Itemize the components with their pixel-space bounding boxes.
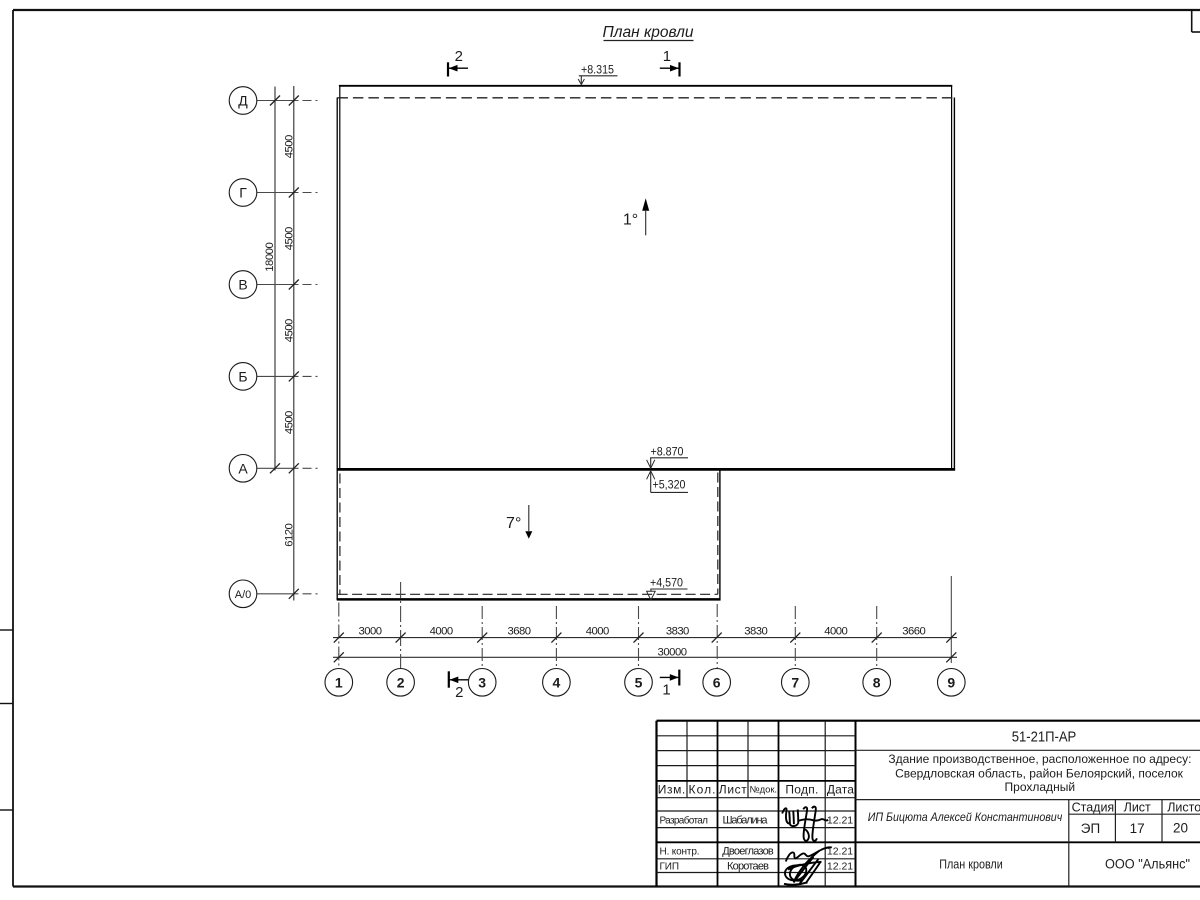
svg-text:План кровли: План кровли <box>939 857 1003 871</box>
svg-text:Разработал: Разработал <box>660 814 709 826</box>
svg-text:Дата: Дата <box>827 783 854 797</box>
svg-text:3830: 3830 <box>744 626 768 638</box>
svg-text:Свердловская область, район Бе: Свердловская область, район Белоярский, … <box>895 766 1184 780</box>
svg-text:2: 2 <box>455 684 463 701</box>
svg-text:Б: Б <box>238 368 247 384</box>
svg-text:3: 3 <box>478 674 486 690</box>
svg-text:Двоеглазов: Двоеглазов <box>722 845 774 857</box>
svg-text:Лист: Лист <box>1124 800 1151 814</box>
svg-text:2: 2 <box>397 674 405 690</box>
svg-text:Стадия: Стадия <box>1072 800 1115 814</box>
svg-text:А/0: А/0 <box>235 589 252 601</box>
svg-text:Лист: Лист <box>719 783 748 797</box>
svg-text:+5,320: +5,320 <box>653 477 686 491</box>
svg-text:Прохладный: Прохладный <box>1005 780 1075 794</box>
svg-text:51-21П-АР: 51-21П-АР <box>1012 729 1077 746</box>
svg-text:4: 4 <box>553 674 561 690</box>
svg-text:Н. контр.: Н. контр. <box>660 846 700 857</box>
svg-text:2: 2 <box>455 48 463 65</box>
svg-text:4500: 4500 <box>283 319 295 343</box>
svg-text:3830: 3830 <box>666 626 690 638</box>
svg-text:Здание производственное, распо: Здание производственное, расположенное п… <box>888 752 1191 766</box>
svg-text:+8.315: +8.315 <box>581 63 614 77</box>
svg-text:Д: Д <box>238 93 248 109</box>
svg-text:6120: 6120 <box>283 523 295 547</box>
svg-text:4000: 4000 <box>824 626 848 638</box>
svg-text:+4,570: +4,570 <box>650 575 683 589</box>
svg-text:9: 9 <box>947 674 955 690</box>
svg-text:12.21: 12.21 <box>827 860 853 872</box>
svg-text:4500: 4500 <box>283 135 295 159</box>
svg-text:7: 7 <box>791 674 799 690</box>
svg-text:4500: 4500 <box>283 227 295 251</box>
svg-text:6: 6 <box>713 674 721 690</box>
svg-text:17: 17 <box>1130 821 1145 836</box>
svg-text:20: 20 <box>1173 821 1188 836</box>
svg-text:18000: 18000 <box>264 242 276 272</box>
svg-text:Листов: Листов <box>1167 800 1200 814</box>
svg-text:3660: 3660 <box>902 626 926 638</box>
svg-text:Г: Г <box>239 185 247 201</box>
svg-text:А: А <box>238 460 248 476</box>
svg-text:30000: 30000 <box>658 647 688 659</box>
svg-text:ООО "Альянс": ООО "Альянс" <box>1105 857 1190 872</box>
svg-text:ЭП: ЭП <box>1081 821 1100 836</box>
svg-text:1°: 1° <box>623 212 638 229</box>
svg-text:Кол.: Кол. <box>689 783 716 797</box>
svg-text:Шабалина: Шабалина <box>723 814 769 826</box>
svg-text:В: В <box>238 277 247 293</box>
svg-text:3680: 3680 <box>508 626 532 638</box>
svg-text:1: 1 <box>663 48 671 65</box>
svg-text:5: 5 <box>635 674 643 690</box>
svg-text:1: 1 <box>662 682 670 699</box>
svg-text:Коротаев: Коротаев <box>727 860 769 872</box>
svg-text:1: 1 <box>335 674 343 690</box>
svg-text:+8.870: +8.870 <box>651 445 684 459</box>
svg-text:8: 8 <box>873 674 881 690</box>
svg-text:4500: 4500 <box>283 411 295 435</box>
svg-text:12.21: 12.21 <box>827 814 853 826</box>
svg-text:Изм.: Изм. <box>658 783 686 797</box>
svg-text:3000: 3000 <box>359 626 383 638</box>
svg-text:Подп.: Подп. <box>785 783 818 797</box>
svg-text:7°: 7° <box>506 515 521 532</box>
svg-text:ГИП: ГИП <box>660 861 680 872</box>
svg-text:4000: 4000 <box>586 626 610 638</box>
svg-text:ИП Бицюта Алексей Константинов: ИП Бицюта Алексей Константинович <box>868 810 1063 824</box>
svg-text:4000: 4000 <box>430 626 454 638</box>
svg-text:План кровли: План кровли <box>603 24 694 41</box>
svg-text:№док.: №док. <box>750 784 778 795</box>
